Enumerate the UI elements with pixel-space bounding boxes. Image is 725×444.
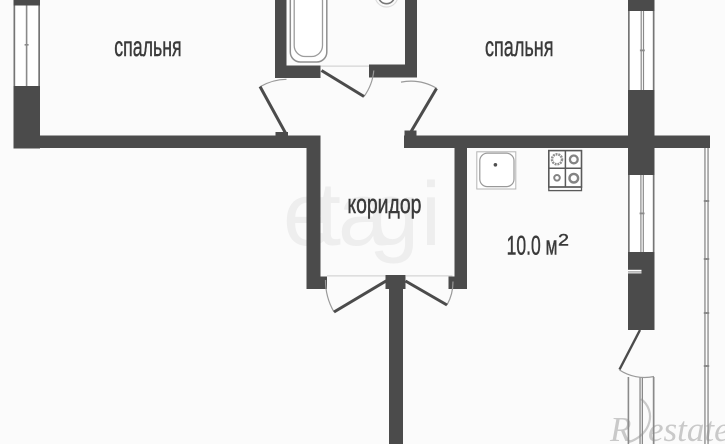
svg-text:i: i (421, 165, 441, 265)
svg-text:спальня: спальня (114, 31, 182, 62)
svg-text:2: 2 (558, 231, 569, 250)
svg-text:спальня: спальня (485, 31, 554, 62)
svg-text:estate: estate (648, 410, 725, 444)
svg-text:10.0 м: 10.0 м (507, 231, 558, 261)
svg-text:коридор: коридор (347, 189, 421, 219)
